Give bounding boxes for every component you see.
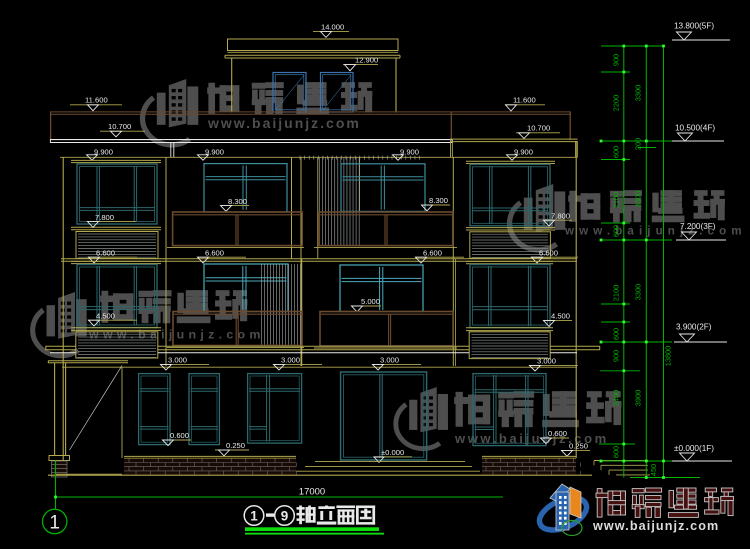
svg-text:www.baijunjz.com: www.baijunjz.com (564, 225, 747, 238)
svg-text:200: 200 (634, 138, 643, 150)
svg-text:600: 600 (612, 146, 621, 158)
svg-text:13.800(5F): 13.800(5F) (674, 21, 714, 30)
svg-text:0.600: 0.600 (548, 429, 567, 438)
svg-text:8.300: 8.300 (429, 196, 448, 205)
svg-text:10.500(4F): 10.500(4F) (675, 123, 715, 132)
svg-text:www.baijunjz.com: www.baijunjz.com (207, 115, 361, 131)
svg-text:1: 1 (250, 509, 258, 524)
svg-text:11.600: 11.600 (513, 96, 536, 105)
svg-text:900: 900 (612, 350, 621, 362)
svg-text:3.000: 3.000 (281, 356, 300, 365)
svg-text:www.baijunjz.com: www.baijunjz.com (592, 519, 719, 533)
svg-text:600: 600 (612, 446, 621, 458)
svg-text:3300: 3300 (634, 85, 643, 101)
svg-text:0.600: 0.600 (170, 431, 189, 440)
svg-text:2100: 2100 (612, 192, 621, 208)
svg-text:17000: 17000 (299, 486, 325, 497)
svg-text:5.000: 5.000 (361, 297, 380, 306)
svg-text:1: 1 (49, 513, 60, 534)
svg-text:7.800: 7.800 (551, 211, 570, 220)
svg-text:10.700: 10.700 (527, 124, 550, 133)
svg-text:6.600: 6.600 (423, 248, 442, 257)
svg-text:900: 900 (612, 54, 621, 66)
svg-text:0.250: 0.250 (226, 441, 245, 450)
svg-text:3300: 3300 (634, 191, 643, 207)
svg-text:3.900(2F): 3.900(2F) (676, 322, 712, 331)
svg-text:0.250: 0.250 (569, 442, 588, 451)
svg-text:3.000: 3.000 (380, 356, 399, 365)
svg-text:4.500: 4.500 (551, 312, 570, 321)
svg-text:8.300: 8.300 (228, 197, 247, 206)
svg-text:7.200(3F): 7.200(3F) (680, 222, 716, 231)
svg-text:3.000: 3.000 (537, 357, 556, 366)
svg-text:7.800: 7.800 (95, 213, 114, 222)
svg-text:600: 600 (612, 328, 621, 340)
svg-text:2100: 2100 (612, 285, 621, 301)
svg-text:14.000: 14.000 (321, 23, 344, 32)
svg-text:±0.000(1F): ±0.000(1F) (674, 444, 714, 453)
svg-text:6.600: 6.600 (539, 248, 558, 257)
svg-text:3.000: 3.000 (168, 356, 187, 365)
svg-text:13800: 13800 (664, 346, 673, 367)
svg-text:450: 450 (649, 464, 658, 476)
svg-text:12.900: 12.900 (355, 56, 378, 65)
svg-text:10.700: 10.700 (108, 122, 131, 131)
svg-text:600: 600 (612, 225, 621, 237)
svg-text:11.600: 11.600 (85, 96, 108, 105)
svg-text:4.500: 4.500 (96, 311, 115, 320)
svg-text:6.600: 6.600 (96, 248, 115, 257)
svg-text:9: 9 (281, 509, 289, 524)
svg-text:2400: 2400 (612, 390, 621, 406)
svg-text:3900: 3900 (634, 390, 643, 406)
svg-text:3300: 3300 (634, 284, 643, 300)
svg-text:±0.000: ±0.000 (381, 448, 404, 457)
svg-text:6.600: 6.600 (205, 248, 224, 257)
svg-text:2200: 2200 (612, 95, 621, 111)
